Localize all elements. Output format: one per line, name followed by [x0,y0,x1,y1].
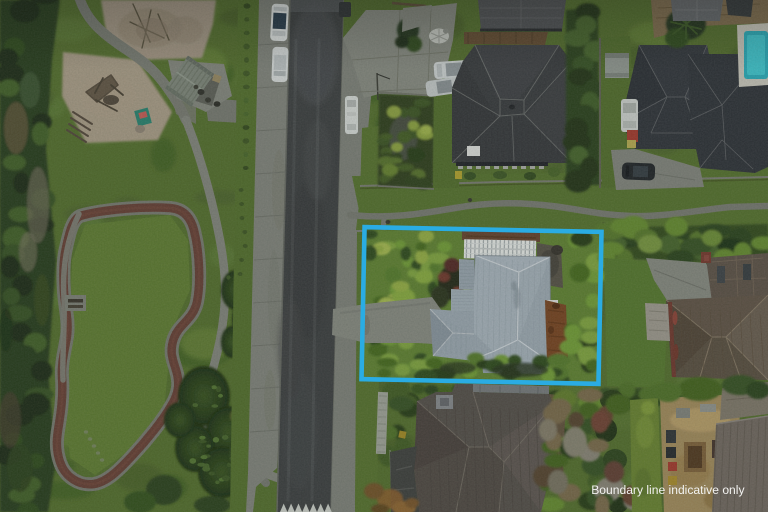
svg-text:Boundary line indicative only: Boundary line indicative only [591,483,745,497]
